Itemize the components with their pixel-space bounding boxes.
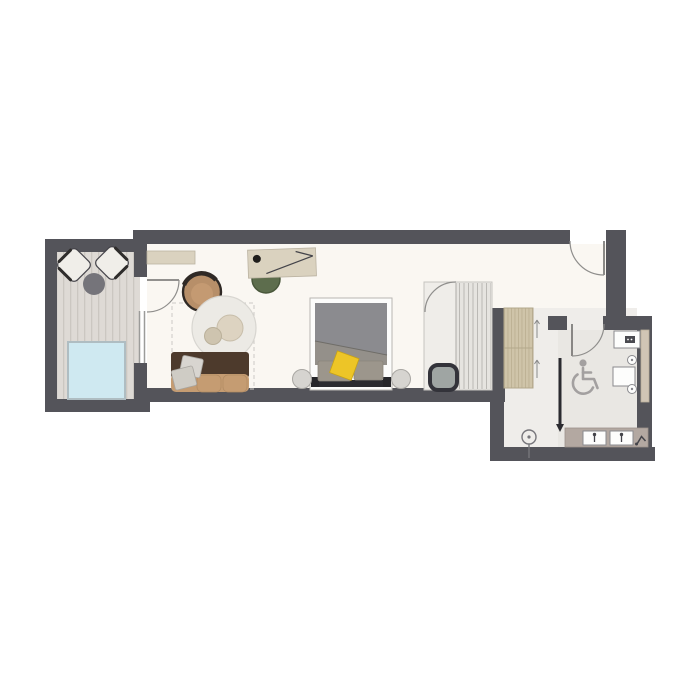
terrace-side-table	[83, 273, 105, 295]
window-pier-top	[134, 244, 147, 277]
double-bed	[310, 298, 392, 390]
south-east-wall	[490, 447, 655, 461]
sofa	[171, 352, 249, 392]
terrace-top-wall	[45, 239, 147, 252]
vanity	[565, 428, 648, 447]
bathroom-side-ledge	[641, 330, 649, 402]
luggage-stool	[430, 365, 457, 390]
entry-right-wall	[606, 230, 626, 318]
bath-top-wall-left	[548, 316, 567, 330]
nightstand-left	[293, 370, 312, 389]
plunge-pool	[68, 342, 125, 399]
writing-desk	[248, 248, 317, 278]
nightstand-right	[392, 370, 411, 389]
closet-hanging-section	[456, 283, 491, 389]
bed-pillow-right	[354, 361, 383, 380]
floor-plan-canvas	[0, 0, 700, 700]
toilet-seat	[613, 367, 635, 386]
floor-plan-drawing	[0, 0, 700, 700]
towel-rail	[645, 404, 649, 430]
wardrobe-closet	[424, 282, 492, 390]
coffee-table-small	[205, 328, 222, 345]
terrace-left-wall	[45, 239, 57, 412]
main-top-wall	[133, 230, 570, 244]
sideboard	[147, 251, 195, 264]
